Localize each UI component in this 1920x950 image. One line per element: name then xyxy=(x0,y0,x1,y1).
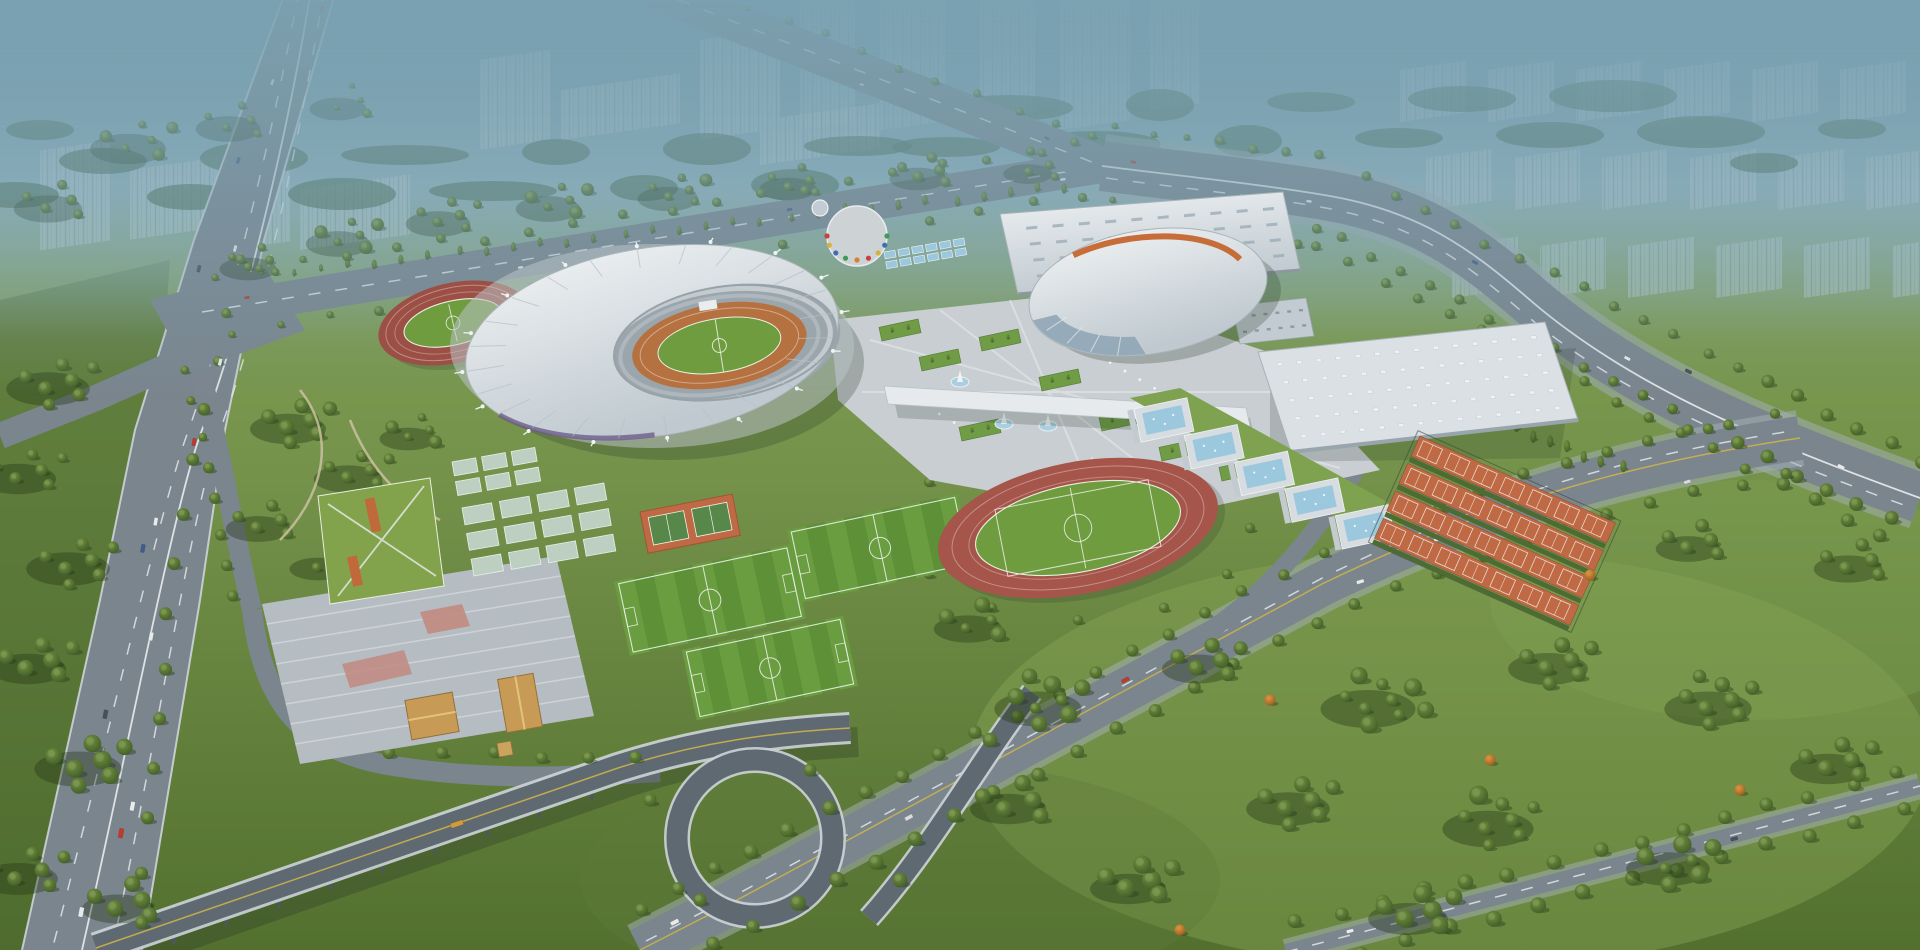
aerial-rendering-canvas xyxy=(0,0,1920,950)
sports-complex-rendering xyxy=(0,0,1920,950)
gold-kiosk xyxy=(497,741,513,757)
helipad-circle xyxy=(812,200,828,216)
gold-pavilion-2 xyxy=(405,692,459,740)
flag-plaza-circle xyxy=(827,206,887,266)
